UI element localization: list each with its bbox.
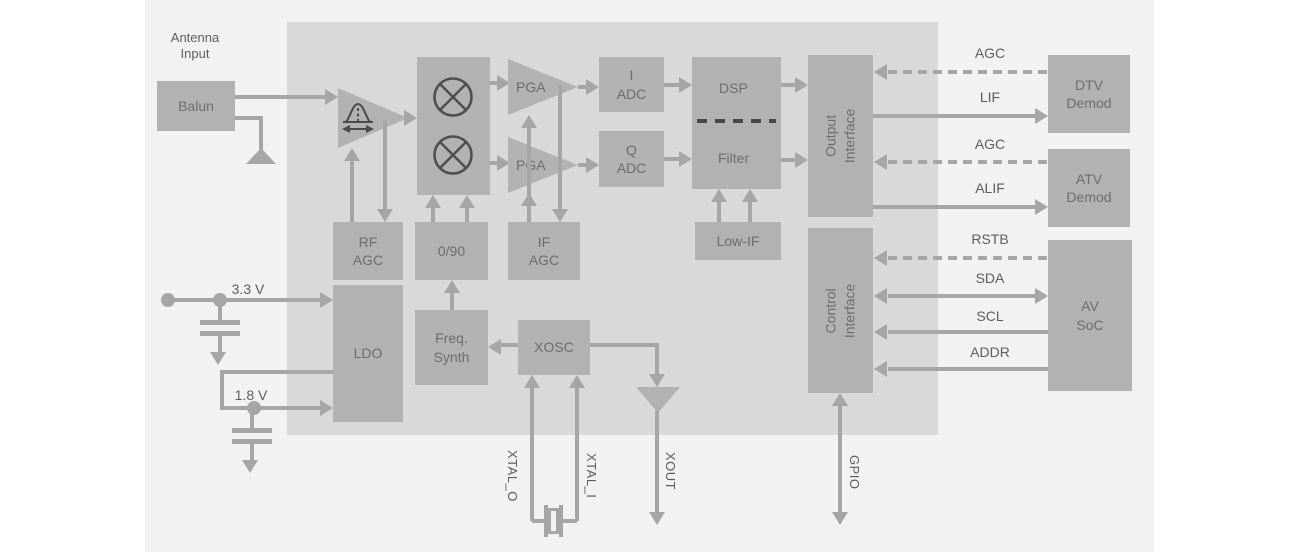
rfagc-up-arrowhead (344, 148, 360, 161)
sda-right-arrowhead (1035, 288, 1048, 304)
lna-to-mixer-arrowhead (404, 110, 417, 126)
freqsynth-up-arrowhead (444, 280, 460, 293)
mixer-icon (432, 76, 474, 118)
filter-out-arrowhead (795, 152, 808, 168)
cap2-stem-top (250, 408, 254, 428)
agc-atv-arrowhead (874, 154, 887, 170)
iadc-out-line (664, 83, 679, 87)
alif-label: ALIF (945, 180, 1035, 196)
xtal-i-label: XTAL_I (584, 453, 599, 498)
antenna-input-label: Antenna Input (148, 30, 242, 63)
xosc-out-line-h (590, 343, 659, 347)
crystal-icon (548, 508, 559, 534)
cap1-stem-top (218, 300, 222, 320)
rstb-dashed-line (888, 256, 1048, 260)
agc-dtv-arrowhead (874, 64, 887, 80)
xosc-out-line-v (655, 343, 659, 376)
cap1-ground-arrowhead (210, 352, 226, 365)
dsp-filter-divider (697, 119, 776, 123)
filter-label: Filter (718, 150, 749, 166)
buffer-in-arrowhead (649, 374, 665, 387)
dsp-out-line (781, 83, 795, 87)
xout-arrowhead (649, 512, 665, 525)
balun-block: Balun (157, 81, 235, 131)
rstb-label: RSTB (945, 231, 1035, 247)
gpio-label: GPIO (847, 455, 862, 490)
lo-up-line-2 (465, 208, 469, 222)
filter-out-line (781, 158, 795, 162)
control-interface-block: Control Interface (808, 228, 873, 393)
xout-line (655, 411, 659, 512)
xtal-o-line (530, 388, 534, 521)
lo-up-arrowhead-1 (425, 195, 441, 208)
lo-up-line-1 (431, 208, 435, 222)
addr-arrowhead (874, 361, 887, 377)
output-interface-block: Output Interface (808, 55, 873, 217)
v18-loop-v-line (220, 370, 224, 410)
rfagc-up-line (350, 160, 354, 222)
pga-tap-down-arrowhead (552, 209, 568, 222)
agc-atv-label: AGC (945, 136, 1035, 152)
xosc-to-freqsynth-arrowhead (488, 339, 501, 355)
freq-synth-block: Freq. Synth (415, 310, 488, 385)
lo-up-arrowhead-2 (459, 195, 475, 208)
cap1-stem-bottom (218, 336, 222, 352)
rf-agc-block: RF AGC (333, 222, 403, 280)
ifagc-up-arrowhead-pga2 (521, 193, 537, 206)
qadc-out-arrowhead (679, 151, 692, 167)
crystal-stub-right (561, 519, 577, 523)
alif-arrowhead (1035, 199, 1048, 215)
scl-line (888, 330, 1048, 334)
xosc-block: XOSC (518, 320, 590, 375)
gpio-up-arrowhead (832, 393, 848, 406)
dsp-out-arrowhead (795, 77, 808, 93)
pga-top-label: PGA (516, 79, 546, 95)
dsp-filter-block (692, 57, 781, 189)
cap2-ground-arrowhead (242, 460, 258, 473)
lif-arrowhead (1035, 108, 1048, 124)
lna-down-arrowhead (377, 209, 393, 222)
xosc-to-freqsynth-line (501, 343, 518, 347)
sda-line (888, 294, 1035, 298)
output-interface-label: Output Interface (822, 109, 860, 163)
agc-dtv-dashed-line (888, 70, 1048, 74)
addr-line (888, 367, 1048, 371)
rstb-arrowhead (874, 250, 887, 266)
lowif-up-arrowhead-1 (711, 189, 727, 202)
pga-bottom-out-arrowhead (586, 157, 599, 173)
xout-label: XOUT (663, 452, 678, 490)
xtal-i-line (575, 388, 579, 521)
capacitor-icon (232, 428, 272, 433)
capacitor-icon (200, 320, 240, 325)
ifagc-up-arrowhead-pga1 (521, 115, 537, 128)
scl-label: SCL (945, 308, 1035, 324)
lowif-up-arrowhead-2 (742, 189, 758, 202)
xtal-i-arrowhead (569, 375, 585, 388)
phase-0-90-block: 0/90 (415, 222, 488, 280)
pga-tap-down-line (558, 85, 562, 209)
if-agc-block: IF AGC (508, 222, 580, 280)
atv-demod-block: ATV Demod (1048, 149, 1130, 227)
dtv-demod-block: DTV Demod (1048, 55, 1130, 133)
control-interface-label: Control Interface (822, 283, 860, 337)
xout-buffer-icon (636, 387, 680, 413)
agc-dtv-label: AGC (945, 45, 1035, 61)
ifagc-up-line (527, 128, 531, 222)
v33-label: 3.3 V (228, 281, 268, 297)
ldo-block: LDO (333, 285, 403, 422)
gpio-down-arrowhead (832, 512, 848, 525)
ground-icon (246, 148, 276, 164)
v18-loop-top-line (220, 370, 333, 374)
av-soc-block: AV SoC (1048, 240, 1132, 391)
gpio-line (838, 406, 842, 512)
tuner-block-diagram: Antenna Input Balun PGA PGA (0, 0, 1300, 552)
freqsynth-up-line (450, 293, 454, 310)
cap2-stem-bottom (250, 444, 254, 460)
alif-line (873, 205, 1035, 209)
v18-arrowhead (320, 400, 333, 416)
qadc-out-line (664, 157, 679, 161)
sda-left-arrowhead (874, 288, 887, 304)
crystal-plate-right (559, 505, 563, 537)
pga-top-out-arrowhead (586, 79, 599, 95)
addr-label: ADDR (945, 344, 1035, 360)
v33-rail-arrowhead (320, 292, 333, 308)
agc-atv-dashed-line (888, 160, 1048, 164)
sda-label: SDA (945, 270, 1035, 286)
lna-down-line (383, 120, 387, 210)
q-adc-block: Q ADC (599, 131, 664, 187)
balun-output-arrowhead (325, 89, 338, 105)
v18-loop-bottom-line (220, 406, 320, 410)
lif-line (873, 114, 1035, 118)
v33-rail-line (168, 298, 320, 302)
balun-output-line (235, 95, 325, 99)
balun-ground-line-v (259, 116, 263, 150)
lowif-up-line-2 (748, 202, 752, 222)
iadc-out-arrowhead (679, 77, 692, 93)
lif-label: LIF (945, 89, 1035, 105)
tracking-filter-icon (340, 99, 378, 136)
low-if-block: Low-IF (695, 222, 781, 260)
xtal-o-arrowhead (524, 375, 540, 388)
dsp-label: DSP (719, 80, 748, 96)
xtal-o-label: XTAL_O (505, 450, 520, 502)
lowif-up-line-1 (717, 202, 721, 222)
scl-arrowhead (874, 324, 887, 340)
mixer-icon (432, 134, 474, 176)
i-adc-block: I ADC (599, 57, 664, 112)
